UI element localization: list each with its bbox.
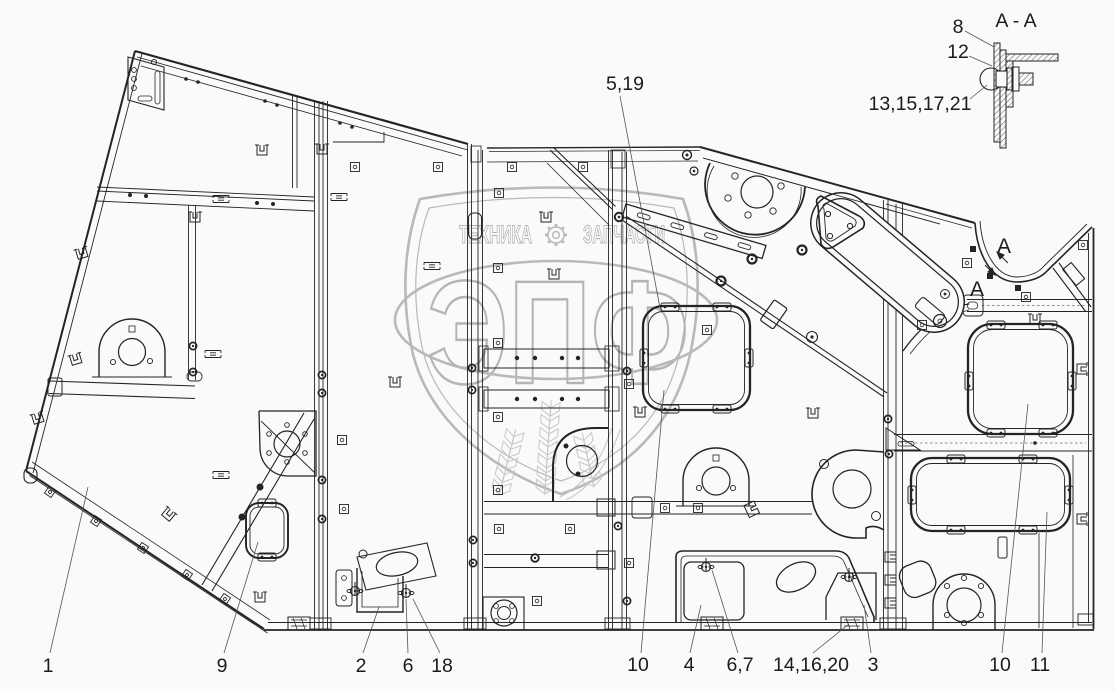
svg-text:14,16,20: 14,16,20 xyxy=(773,654,849,676)
svg-text:12: 12 xyxy=(947,41,969,63)
svg-text:13,15,17,21: 13,15,17,21 xyxy=(868,93,971,115)
svg-text:2: 2 xyxy=(356,655,367,677)
svg-text:1: 1 xyxy=(43,655,54,677)
svg-text:ТЕХНИКА: ТЕХНИКА xyxy=(459,221,532,249)
svg-text:ЗАПЧАСТИ: ЗАПЧАСТИ xyxy=(583,221,665,249)
svg-text:A - A: A - A xyxy=(995,10,1036,32)
svg-text:4: 4 xyxy=(684,654,695,676)
svg-text:10: 10 xyxy=(627,654,649,676)
svg-text:10: 10 xyxy=(989,654,1011,676)
svg-text:6: 6 xyxy=(403,655,414,677)
svg-text:A: A xyxy=(970,278,984,301)
svg-text:6,7: 6,7 xyxy=(726,654,753,676)
svg-text:18: 18 xyxy=(431,655,453,677)
svg-text:9: 9 xyxy=(217,655,228,677)
svg-text:8: 8 xyxy=(953,16,964,38)
svg-text:3: 3 xyxy=(868,654,879,676)
svg-text:11: 11 xyxy=(1030,654,1050,676)
svg-text:5,19: 5,19 xyxy=(606,73,644,95)
